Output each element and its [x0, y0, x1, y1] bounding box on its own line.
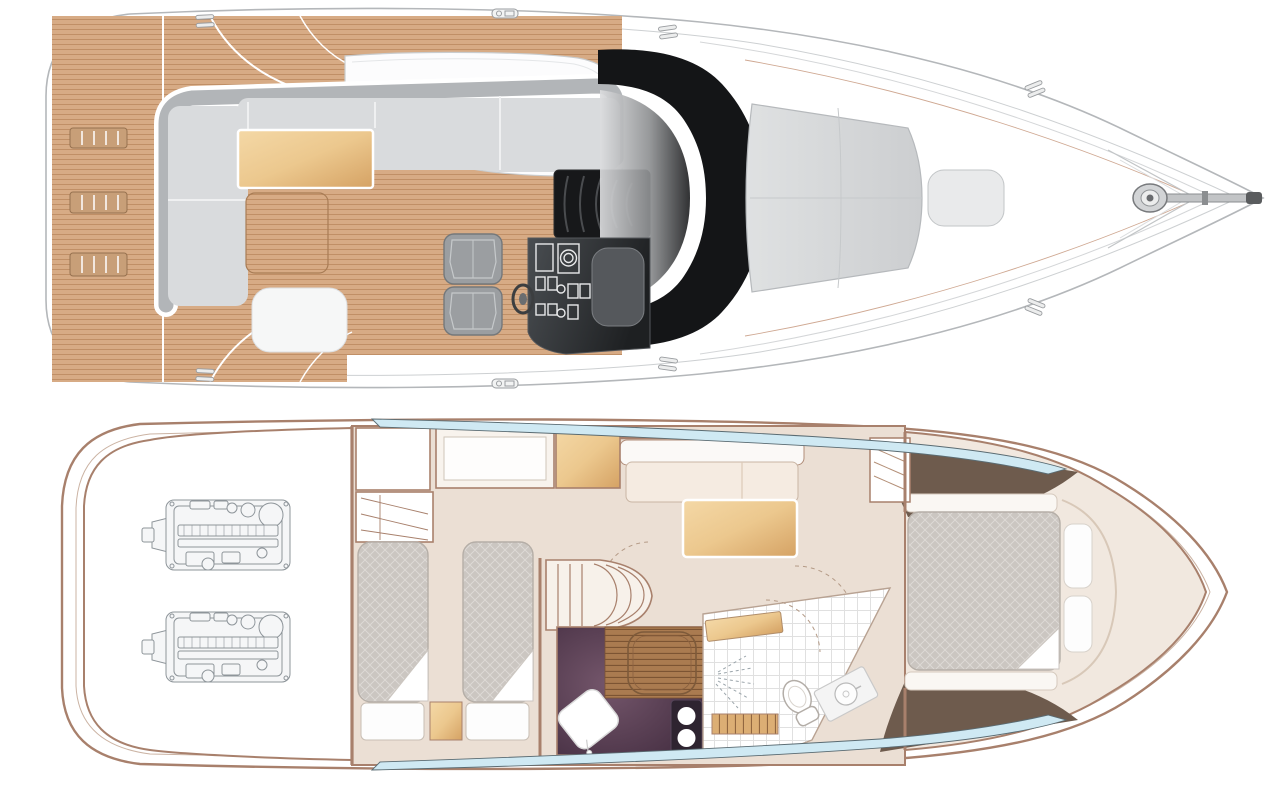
saloon-table — [683, 500, 797, 557]
master-bed — [908, 512, 1060, 670]
sunbed-base — [252, 288, 347, 352]
lower-deck-view — [62, 419, 1227, 770]
deck-vent-2 — [70, 192, 127, 213]
master-cabin — [880, 432, 1206, 752]
master-side-bench-bottom — [905, 672, 1057, 690]
dinette-floor — [605, 627, 703, 698]
cockpit-table — [238, 130, 373, 188]
deck-plan-canvas — [0, 0, 1280, 796]
twin-tan-cabinet — [556, 428, 620, 488]
nightstand — [430, 702, 462, 740]
sun-pad-bolster — [928, 170, 1004, 226]
stairwell — [546, 560, 652, 630]
helm-seats — [444, 234, 502, 335]
teak-floor-panel — [246, 193, 328, 273]
twin-shelf-unit — [436, 428, 554, 488]
bath-steps — [712, 714, 778, 734]
twin-wardrobe — [356, 492, 433, 542]
deck-vent-1 — [70, 128, 127, 148]
helm-seat-1 — [444, 234, 502, 284]
master-side-bench-top — [905, 494, 1057, 512]
helm-seat-2 — [444, 287, 502, 335]
main-deck-view — [46, 8, 1263, 388]
twin-bed-1 — [358, 542, 428, 740]
helm-console — [528, 238, 650, 354]
galley-hob — [671, 700, 702, 753]
galley — [555, 627, 703, 758]
master-pillow-1 — [1064, 524, 1092, 588]
engine-room — [84, 428, 352, 760]
bed1-sheet — [361, 703, 424, 740]
bed2-sheet — [466, 703, 529, 740]
yacht-deck-plan — [0, 0, 1280, 796]
master-pillow-2 — [1064, 596, 1092, 652]
deck-vent-3 — [70, 253, 127, 276]
twin-bed-2 — [463, 542, 533, 740]
helm-console-seat — [592, 248, 644, 326]
twin-cabinet — [356, 428, 430, 490]
cushion-left — [168, 106, 248, 306]
saloon-sofa-seat — [626, 462, 798, 502]
